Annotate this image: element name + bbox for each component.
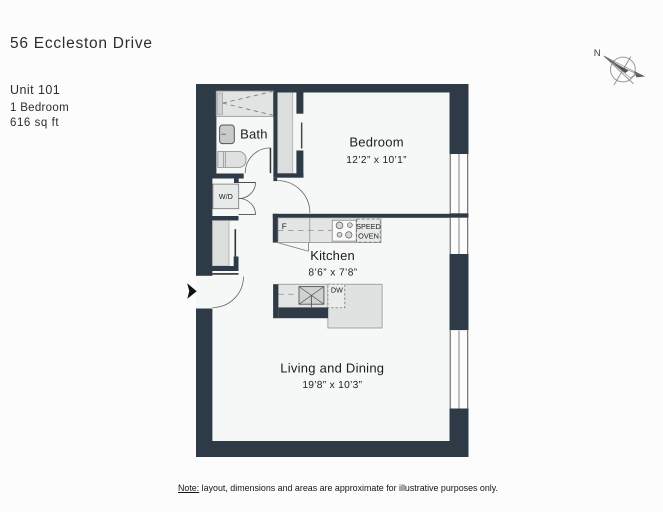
svg-text:8’6” x 7’8”: 8’6” x 7’8” bbox=[308, 268, 357, 279]
svg-text:SPEED: SPEED bbox=[356, 222, 381, 231]
svg-text:DW: DW bbox=[331, 285, 343, 294]
svg-text:Living and Dining: Living and Dining bbox=[280, 360, 384, 375]
svg-text:Kitchen: Kitchen bbox=[310, 248, 355, 263]
svg-text:N: N bbox=[594, 48, 601, 59]
svg-text:Bedroom: Bedroom bbox=[349, 135, 404, 150]
svg-text:W/D: W/D bbox=[219, 192, 233, 201]
svg-text:12’2” x 10’1”: 12’2” x 10’1” bbox=[346, 155, 407, 166]
svg-text:19’8” x 10’3”: 19’8” x 10’3” bbox=[302, 380, 362, 391]
svg-text:OVEN: OVEN bbox=[358, 231, 379, 240]
svg-text:F: F bbox=[282, 222, 287, 231]
svg-text:Bath: Bath bbox=[240, 127, 268, 142]
